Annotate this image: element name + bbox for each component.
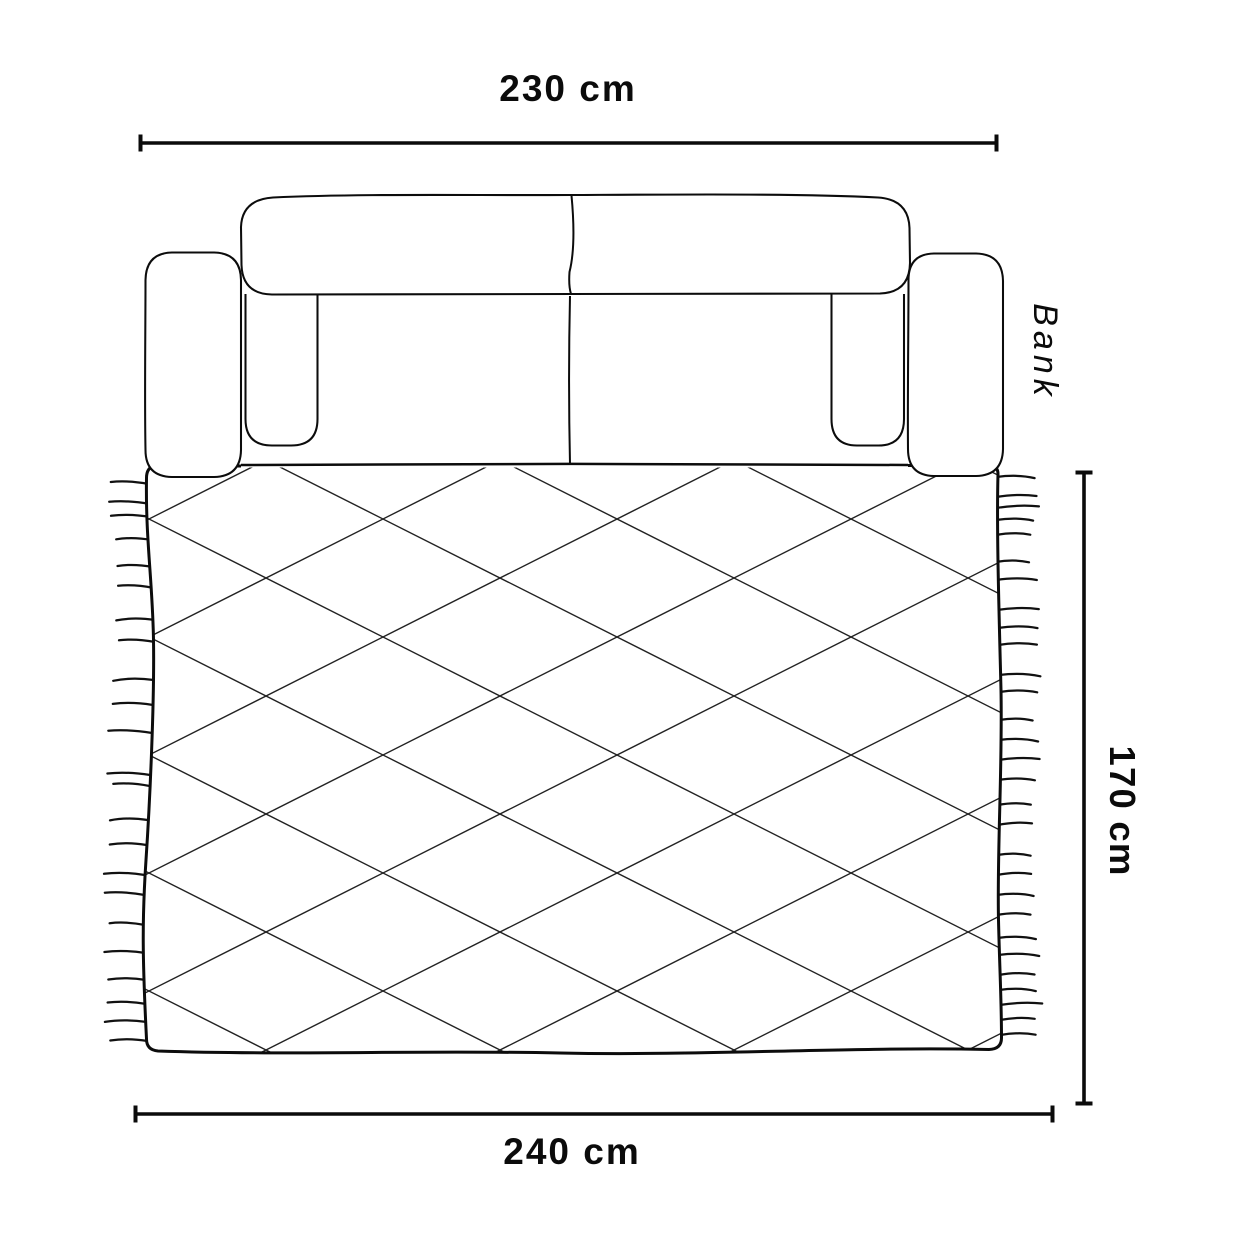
- svg-text:Bank: Bank: [1026, 303, 1064, 401]
- svg-text:240 cm: 240 cm: [503, 1131, 641, 1172]
- svg-text:170 cm: 170 cm: [1102, 746, 1143, 877]
- svg-text:230 cm: 230 cm: [499, 68, 637, 109]
